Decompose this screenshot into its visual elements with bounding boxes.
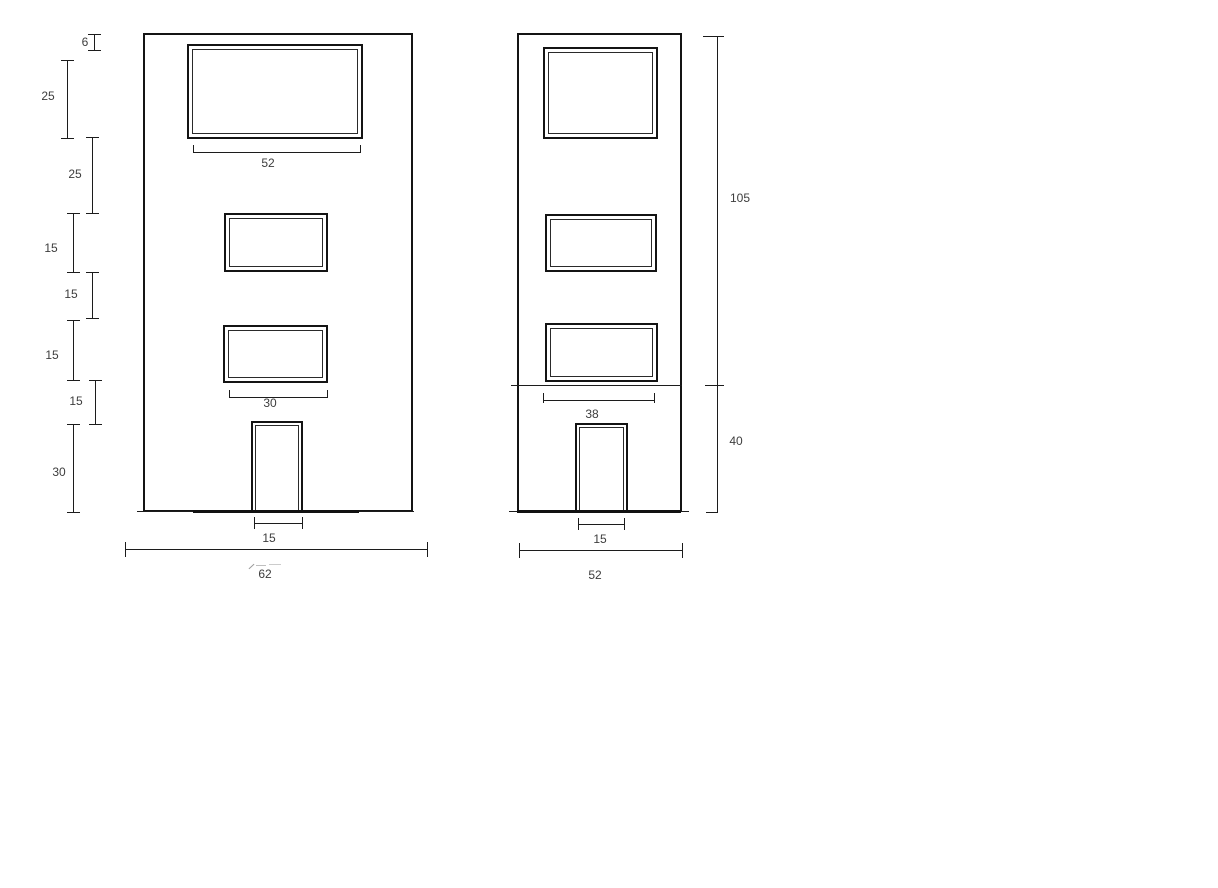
dim-tick [89, 424, 102, 425]
dim-tick [67, 320, 80, 321]
left-top-window [187, 44, 363, 139]
dim-label-height-15a: 15 [44, 242, 57, 254]
erased-mark [256, 565, 266, 566]
window-inner-frame [192, 49, 358, 134]
dim-tick [86, 137, 99, 138]
dim-tick [67, 272, 80, 273]
left-mid-window-1 [224, 213, 328, 272]
dim-line-height-30 [73, 424, 74, 513]
dim-tick [88, 34, 101, 35]
dim-tick [229, 390, 230, 398]
dim-line-height-15d [95, 380, 96, 425]
dim-line-height-15b [92, 272, 93, 319]
dim-tick [682, 543, 683, 558]
erased-mark [249, 564, 255, 569]
dim-tick [89, 380, 102, 381]
dim-tick [254, 517, 255, 529]
dim-label-height-15d: 15 [69, 395, 82, 407]
right-division-line [511, 385, 682, 386]
dim-tick [86, 213, 99, 214]
dim-tick [86, 272, 99, 273]
dim-tick [86, 318, 99, 319]
dim-tick [67, 213, 80, 214]
door-inner-frame [579, 427, 624, 512]
dim-label-height-25a: 25 [41, 90, 54, 102]
dim-line-door-15 [254, 523, 303, 524]
right-mid-window-1 [545, 214, 657, 272]
dim-tick [327, 390, 328, 398]
dim-tick [427, 542, 428, 557]
dim-tick [706, 512, 718, 513]
left-mid-window-2 [223, 325, 328, 383]
dim-tick [543, 393, 544, 403]
dim-label-height-15c: 15 [45, 349, 58, 361]
window-inner-frame [550, 328, 653, 377]
erased-mark [269, 564, 281, 565]
dim-tick [302, 517, 303, 529]
window-inner-frame [550, 219, 652, 267]
dim-label-height-6: 6 [82, 36, 89, 48]
dim-tick [654, 393, 655, 403]
right-top-window [543, 47, 658, 139]
dim-tick [67, 512, 80, 513]
dim-tick [705, 385, 724, 386]
dim-tick [624, 518, 625, 530]
dim-tick [360, 145, 361, 153]
left-door [251, 421, 303, 512]
dim-label-window-38: 38 [585, 408, 598, 420]
dim-line-heights-right [717, 36, 718, 513]
dim-tick [125, 542, 126, 557]
window-inner-frame [548, 52, 653, 134]
elevation-drawing: 6 25 25 15 15 15 15 30 52 [0, 0, 1218, 888]
dim-line-overall-62 [125, 549, 428, 550]
dim-label-door-15: 15 [262, 532, 275, 544]
window-inner-frame [228, 330, 323, 378]
left-ground-line-thick [193, 510, 359, 513]
dim-line-height-15a [73, 213, 74, 273]
dim-label-overall-52: 52 [588, 569, 601, 581]
dim-tick [193, 145, 194, 153]
dim-tick [578, 518, 579, 530]
dim-label-height-40: 40 [729, 435, 742, 447]
right-door [575, 423, 628, 512]
dim-tick [519, 543, 520, 558]
dim-line-height-25a [67, 60, 68, 139]
right-mid-window-2 [545, 323, 658, 382]
dim-line-height-6 [94, 34, 95, 51]
dim-label-overall-62: 62 [258, 568, 271, 580]
dim-tick [67, 380, 80, 381]
window-inner-frame [229, 218, 323, 267]
dim-tick [61, 60, 74, 61]
dim-tick [703, 36, 724, 37]
dim-label-height-30: 30 [52, 466, 65, 478]
dim-line-overall-52 [519, 550, 683, 551]
dim-line-window-52 [193, 152, 361, 153]
door-inner-frame [255, 425, 299, 512]
right-ground-line-thick [517, 510, 681, 513]
dim-label-height-25b: 25 [68, 168, 81, 180]
dim-label-window-30: 30 [263, 397, 276, 409]
dim-line-window-38 [543, 400, 655, 401]
dim-line-window-30 [229, 397, 328, 398]
dim-line-height-25b [92, 137, 93, 214]
dim-label-height-105: 105 [730, 192, 750, 204]
dim-line-height-15c [73, 320, 74, 381]
dim-tick [67, 424, 80, 425]
dim-tick [88, 50, 101, 51]
dim-tick [61, 138, 74, 139]
dim-label-right-door-15: 15 [593, 533, 606, 545]
dim-label-height-15b: 15 [64, 288, 77, 300]
dim-label-window-52: 52 [261, 157, 274, 169]
dim-line-right-door-15 [578, 524, 625, 525]
